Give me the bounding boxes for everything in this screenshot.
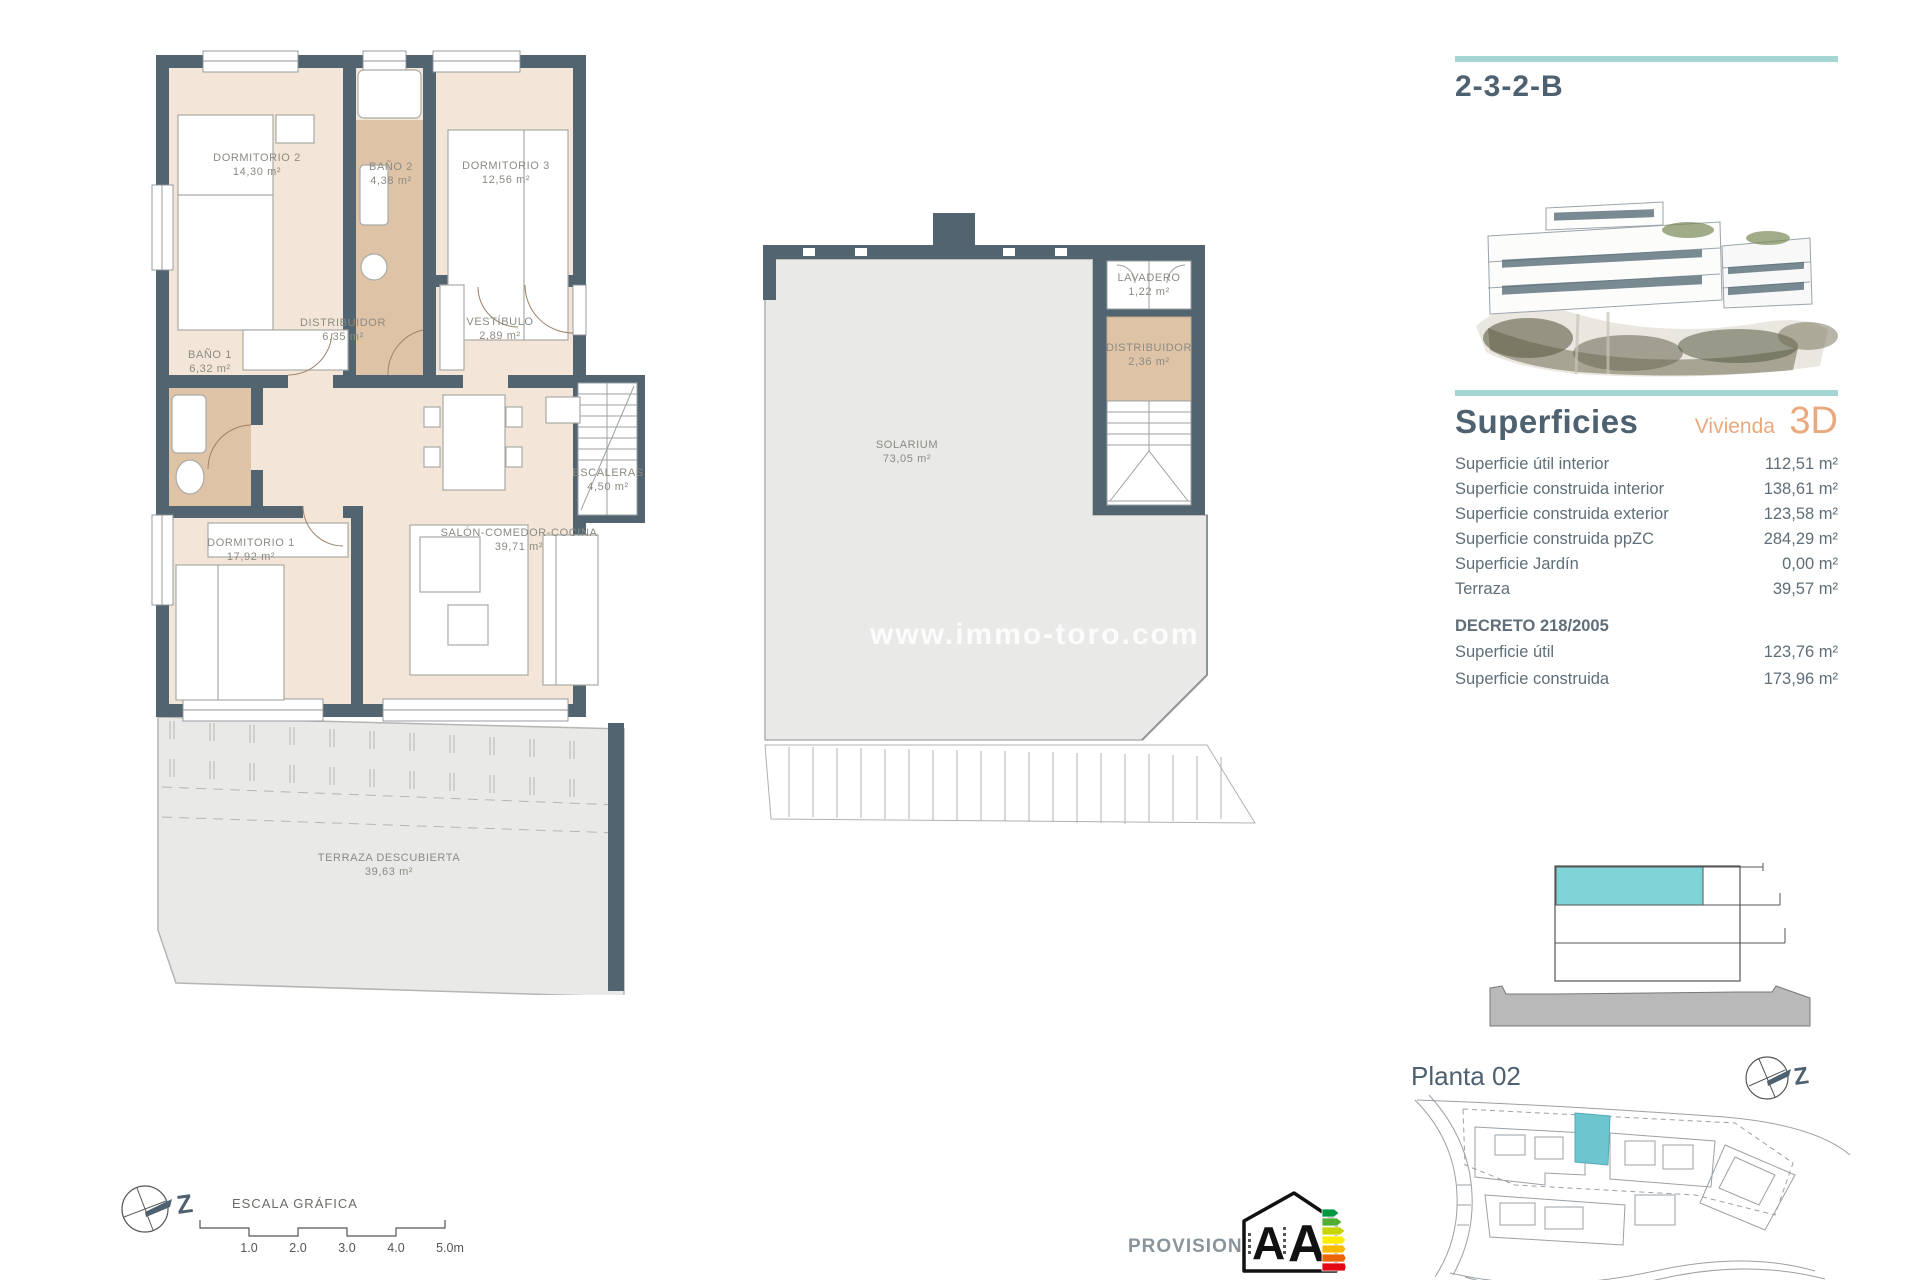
svg-text:4,50 m²: 4,50 m²	[587, 481, 629, 493]
decreto-title: DECRETO 218/2005	[1455, 613, 1838, 639]
header-rule	[1455, 56, 1838, 62]
section-diagram	[1480, 848, 1820, 1028]
svg-text:2,36 m²: 2,36 m²	[1128, 356, 1170, 368]
scale-tick: 2.0	[289, 1241, 306, 1255]
svg-text:39,63 m²: 39,63 m²	[365, 866, 413, 878]
room-label-dormitorio-1: DORMITORIO 1	[207, 537, 295, 549]
watermark: www.immo-toro.com	[870, 618, 1200, 652]
vivienda-value: 3D	[1789, 400, 1838, 442]
room-label-terraza: TERRAZA DESCUBIERTA	[318, 852, 460, 864]
room-label-distribuidor: DISTRIBUIDOR	[300, 317, 386, 329]
compass-letter: Z	[1792, 1062, 1810, 1091]
floor-plan-solarium: SOLARIUM 73,05 m² LAVADERO 1,22 m² DISTR…	[755, 205, 1265, 865]
solarium-lower-terrace	[765, 745, 1255, 824]
svg-text:1,22 m²: 1,22 m²	[1128, 286, 1170, 298]
room-label-vestibulo: VESTÍBULO	[466, 315, 533, 328]
north-compass-icon: Z	[1746, 1057, 1810, 1099]
scale-tick: 1.0	[240, 1241, 257, 1255]
superficies-header: Superficies Vivienda 3D	[1455, 400, 1838, 443]
svg-text:73,05 m²: 73,05 m²	[883, 453, 931, 465]
svg-text:4,38 m²: 4,38 m²	[370, 175, 412, 187]
room-label-escaleras: ESCALERAS	[572, 467, 643, 479]
building-rendering	[1458, 178, 1842, 383]
room-label-salon: SALÓN-COMEDOR-COCINA	[441, 526, 598, 539]
unit-highlight	[1575, 1113, 1610, 1165]
table-row: Terraza39,57 m²	[1455, 577, 1838, 602]
energy-letter: A	[1288, 1215, 1326, 1273]
site-plan: Planta 02 Z	[1395, 1045, 1865, 1280]
table-row: Superficie construida173,96 m²	[1455, 666, 1838, 693]
room-label-lavadero: LAVADERO	[1117, 272, 1180, 284]
vivienda-label: Vivienda	[1695, 415, 1775, 438]
svg-text:6,32 m²: 6,32 m²	[189, 363, 231, 375]
room-label-distribuidor-2: DISTRIBUIDOR	[1106, 342, 1192, 354]
scale-tick: 4.0	[387, 1241, 404, 1255]
table-row: Superficie construida exterior123,58 m²	[1455, 502, 1838, 527]
svg-text:39,71 m²: 39,71 m²	[495, 541, 543, 553]
room-label-bano-2: BAÑO 2	[369, 160, 413, 173]
room-label-dormitorio-2: DORMITORIO 2	[213, 152, 301, 164]
energy-rating-icon: A A	[1236, 1183, 1346, 1277]
svg-text:14,30 m²: 14,30 m²	[233, 166, 281, 178]
superficies-rule	[1455, 390, 1838, 396]
room-label-bano-1: BAÑO 1	[188, 348, 232, 361]
svg-text:17,92 m²: 17,92 m²	[227, 551, 275, 563]
svg-text:2,89 m²: 2,89 m²	[479, 330, 521, 342]
floor-plan-main: DORMITORIO 2 14,30 m² BAÑO 2 4,38 m² DOR…	[148, 45, 688, 995]
table-row: Superficie Jardín0,00 m²	[1455, 552, 1838, 577]
scale-title: ESCALA GRÁFICA	[232, 1196, 358, 1211]
table-row: Superficie útil interior112,51 m²	[1455, 452, 1838, 477]
table-row: Superficie útil123,76 m²	[1455, 639, 1838, 666]
table-row: Superficie construida ppZC284,29 m²	[1455, 527, 1838, 552]
stairs-main	[578, 383, 637, 515]
scale-tick: 3.0	[338, 1241, 355, 1255]
lavadero-room	[1107, 261, 1191, 309]
room-label-dormitorio-3: DORMITORIO 3	[462, 160, 550, 172]
energy-letter: A	[1252, 1217, 1285, 1269]
energy-bars	[1322, 1209, 1346, 1271]
planta-title: Planta 02	[1411, 1061, 1521, 1091]
svg-text:6,35 m²: 6,35 m²	[322, 331, 364, 343]
svg-text:12,56 m²: 12,56 m²	[482, 174, 530, 186]
scale-tick: 5.0m	[436, 1241, 464, 1255]
scale-bar: 1.0 2.0 3.0 4.0 5.0m	[198, 1216, 478, 1260]
superficies-title: Superficies	[1455, 403, 1638, 441]
room-label-solarium: SOLARIUM	[876, 439, 938, 451]
stairs-solarium	[1107, 401, 1191, 505]
superficies-table: Superficie útil interior112,51 m² Superf…	[1455, 452, 1838, 693]
compass-letter: Z	[175, 1188, 195, 1220]
unit-code: 2-3-2-B	[1455, 70, 1564, 104]
table-row: Superficie construida interior138,61 m²	[1455, 477, 1838, 502]
